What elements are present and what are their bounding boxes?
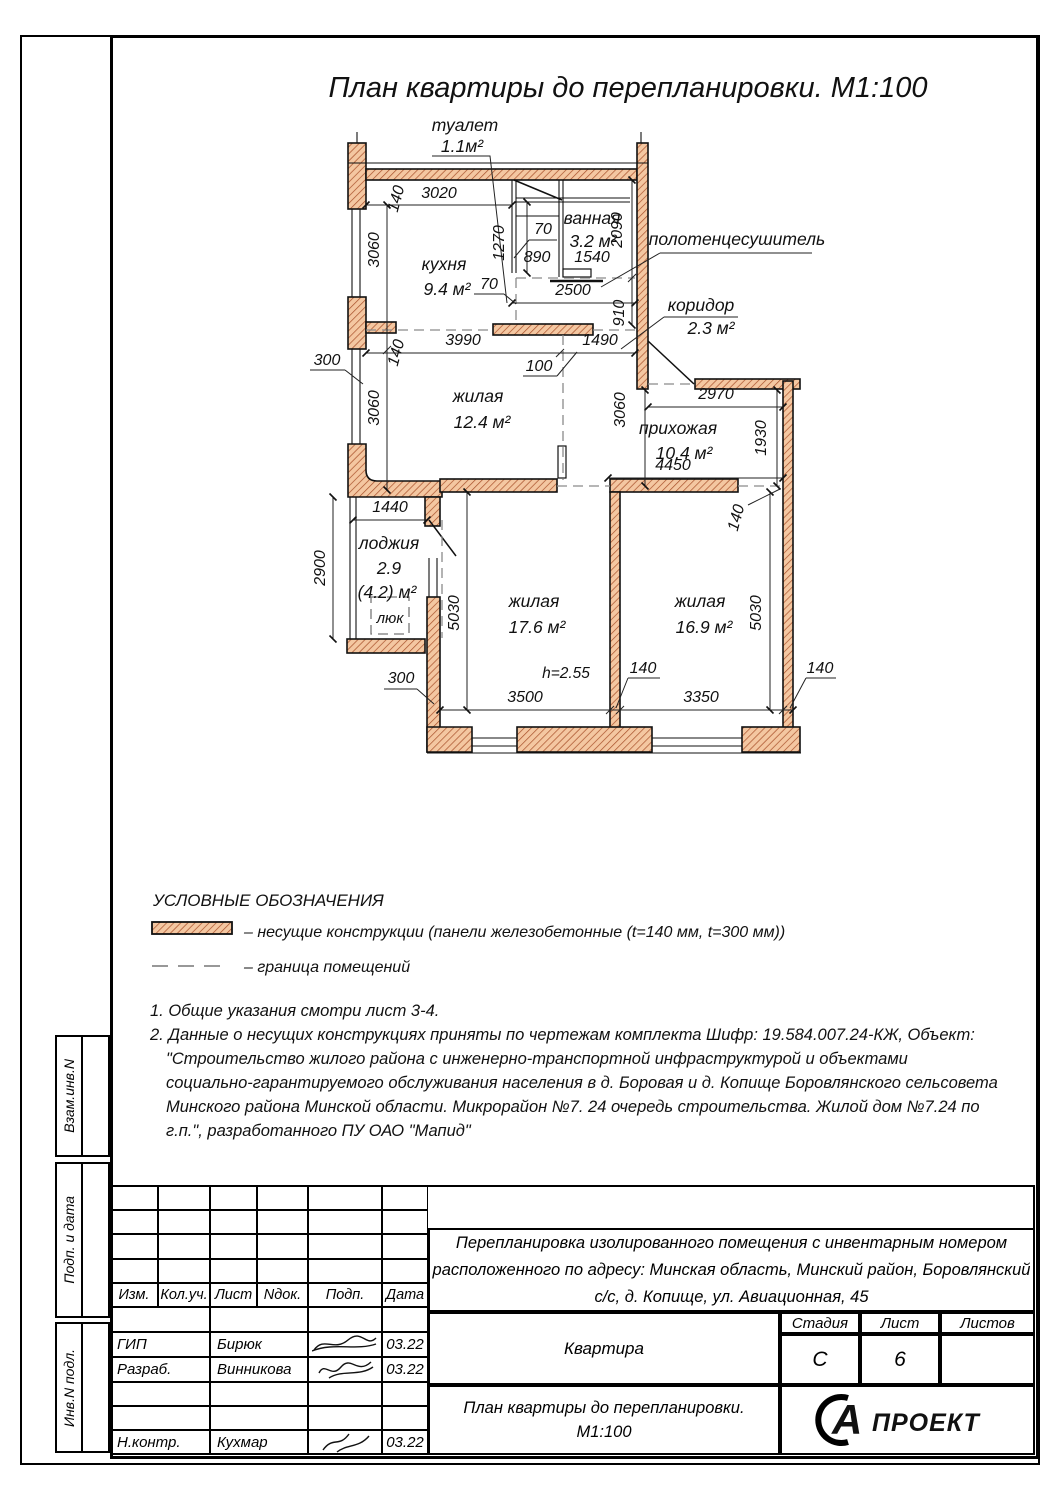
side-box-podp: Подп. и дата xyxy=(55,1162,110,1318)
towel-dryer-label: полотенцесушитель xyxy=(649,229,825,249)
document-title-cell: Перепланировка изолированного помещения … xyxy=(428,1228,1035,1312)
svg-text:социально-гарантируемого обслу: социально-гарантируемого обслуживания на… xyxy=(166,1074,998,1092)
svg-text:300: 300 xyxy=(314,352,341,369)
svg-text:3060: 3060 xyxy=(366,232,383,268)
room-hall-name: прихожая xyxy=(639,418,717,438)
svg-text:1440: 1440 xyxy=(372,499,408,516)
legend-bearing-swatch xyxy=(152,922,232,934)
svg-text:1. Общие указания смотри лист: 1. Общие указания смотри лист 3-4. xyxy=(150,1002,439,1020)
stage-value: С xyxy=(780,1334,860,1385)
logo-cell: А ПРОЕКТ xyxy=(780,1385,1035,1455)
room-loggia-area1: 2.9 xyxy=(376,558,402,578)
legend-boundary-label: – граница помещений xyxy=(243,959,410,976)
room-living2-name: жилая xyxy=(508,591,560,611)
ceiling-height-note: h=2.55 xyxy=(542,665,590,682)
row-razrab-date: 03.22 xyxy=(382,1357,428,1382)
svg-text:3500: 3500 xyxy=(507,689,543,706)
svg-text:г.п.", разработанного ПУ ОАО ": г.п.", разработанного ПУ ОАО "Мапид" xyxy=(166,1122,472,1140)
row-razrab-name: Винникова xyxy=(210,1357,308,1382)
room-kitchen-name: кухня xyxy=(422,254,467,274)
row-nkontr-role: Н.контр. xyxy=(110,1430,210,1455)
row-nkontr-date: 03.22 xyxy=(382,1430,428,1455)
floor-plan: План квартиры до перепланировки. М1:100 xyxy=(0,0,1060,1180)
room-corridor-area: 2.3 м² xyxy=(686,318,735,338)
door-jamb xyxy=(558,446,566,478)
hatch-label: люк xyxy=(376,610,405,627)
svg-text:70: 70 xyxy=(534,221,552,238)
room-living2-area: 17.6 м² xyxy=(509,617,567,637)
side-box-vzam: Взам.инв.N xyxy=(55,1035,110,1157)
room-bath-area: 3.2 м² xyxy=(569,231,617,251)
document-title-line: расположенного по адресу: Минская област… xyxy=(433,1257,1031,1284)
document-title-line: с/с, д. Копище, ул. Авиационная, 45 xyxy=(594,1284,868,1311)
general-notes: 1. Общие указания смотри лист 3-4. 2. Да… xyxy=(149,1002,998,1140)
col-izm: Изм. xyxy=(110,1283,158,1307)
row-razrab-role: Разраб. xyxy=(110,1357,210,1382)
col-podp: Подп. xyxy=(308,1283,382,1307)
row-gip-date: 03.22 xyxy=(382,1332,428,1357)
row-gip-role: ГИП xyxy=(110,1332,210,1357)
drawing-sheet: План квартиры до перепланировки. М1:100 xyxy=(0,0,1060,1500)
room-hall-area: 10.4 м² xyxy=(656,443,714,463)
svg-text:5030: 5030 xyxy=(748,595,765,631)
room-living1-name: жилая xyxy=(452,386,504,406)
col-data: Дата xyxy=(382,1283,428,1307)
svg-text:2970: 2970 xyxy=(697,386,734,403)
sheet-title-cell: План квартиры до перепланировки. М1:100 xyxy=(428,1385,780,1455)
svg-text:100: 100 xyxy=(526,358,553,375)
svg-text:140: 140 xyxy=(725,503,748,533)
room-toilet-area: 1.1м² xyxy=(441,136,484,156)
svg-text:1930: 1930 xyxy=(753,420,770,456)
signature-icon xyxy=(312,1334,378,1356)
room-toilet-name: туалет xyxy=(432,115,498,135)
svg-text:2. Данные о несущих конструкци: 2. Данные о несущих конструкциях приняты… xyxy=(149,1026,975,1044)
side-label-vzam: Взам.инв.N xyxy=(61,1059,77,1133)
legend-bearing-label: – несущие конструкции (панели железобето… xyxy=(243,924,785,941)
svg-text:890: 890 xyxy=(524,249,551,266)
logo-letter: А xyxy=(831,1396,862,1443)
sheet-title-line: План квартиры до перепланировки. xyxy=(463,1396,744,1420)
sheets-total xyxy=(940,1334,1035,1385)
towel-dryer-symbol xyxy=(550,269,603,478)
room-corridor-name: коридор xyxy=(668,295,735,315)
room-living1-area: 12.4 м² xyxy=(454,412,512,432)
object-name-cell: Квартира xyxy=(428,1312,780,1385)
signature-rows: ГИП Бирюк 03.22 Разраб. Винникова 03.22 … xyxy=(110,1307,428,1455)
room-living3-area: 16.9 м² xyxy=(676,617,734,637)
svg-text:Минского района Минской област: Минского района Минской области. Микрора… xyxy=(166,1098,980,1116)
document-title-line: Перепланировка изолированного помещения … xyxy=(456,1230,1007,1257)
svg-text:140: 140 xyxy=(807,660,834,677)
stage-label-cell: Стадия xyxy=(780,1312,860,1334)
logo-word: ПРОЕКТ xyxy=(872,1409,981,1437)
side-label-inv: Инв.N подл. xyxy=(61,1349,77,1427)
legend: УСЛОВНЫЕ ОБОЗНАЧЕНИЯ – несущие конструкц… xyxy=(152,891,785,976)
svg-text:"Строительство жилого района с: "Строительство жилого района с инженерно… xyxy=(166,1050,908,1068)
dimension-labels: 3020 2500 3990 1490 2970 4450 1440 3500 … xyxy=(312,184,833,706)
side-box-inv: Инв.N подл. xyxy=(55,1322,110,1453)
sheets-label-cell: Листов xyxy=(940,1312,1035,1334)
svg-text:3060: 3060 xyxy=(612,392,629,428)
row-nkontr-signature xyxy=(308,1430,382,1455)
svg-text:1540: 1540 xyxy=(574,249,610,266)
aproekt-logo-icon: А ПРОЕКТ xyxy=(808,1393,1008,1447)
svg-text:140: 140 xyxy=(385,184,408,214)
signature-icon xyxy=(317,1432,373,1454)
room-bath-name: ванная xyxy=(564,208,621,228)
sheet-label-cell: Лист xyxy=(860,1312,940,1334)
svg-text:3060: 3060 xyxy=(366,390,383,426)
revision-header-row: Изм. Кол.уч. Лист Nдок. Подп. Дата xyxy=(110,1283,428,1307)
svg-text:140: 140 xyxy=(630,660,657,677)
svg-text:140: 140 xyxy=(385,338,408,368)
col-ndok: Nдок. xyxy=(257,1283,308,1307)
signature-icon xyxy=(315,1359,375,1381)
page-title: План квартиры до перепланировки. М1:100 xyxy=(329,72,928,104)
sheet-title-line: М1:100 xyxy=(576,1420,631,1444)
svg-text:3990: 3990 xyxy=(445,332,481,349)
svg-text:70: 70 xyxy=(480,276,498,293)
legend-heading: УСЛОВНЫЕ ОБОЗНАЧЕНИЯ xyxy=(152,891,384,910)
row-nkontr-name: Кухмар xyxy=(210,1430,308,1455)
svg-text:300: 300 xyxy=(388,670,415,687)
svg-text:2500: 2500 xyxy=(554,282,591,299)
revision-grid xyxy=(110,1185,428,1283)
svg-text:910: 910 xyxy=(611,300,628,327)
col-list: Лист xyxy=(210,1283,257,1307)
sheet-number: 6 xyxy=(860,1334,940,1385)
row-razrab-signature xyxy=(308,1357,382,1382)
svg-text:2900: 2900 xyxy=(312,550,329,587)
svg-text:1270: 1270 xyxy=(491,225,508,261)
svg-text:1490: 1490 xyxy=(582,332,618,349)
row-gip-name: Бирюк xyxy=(210,1332,308,1357)
svg-text:3350: 3350 xyxy=(683,689,719,706)
room-living3-name: жилая xyxy=(674,591,726,611)
row-gip-signature xyxy=(308,1332,382,1357)
room-loggia-area2: (4.2) м² xyxy=(358,582,418,602)
room-kitchen-area: 9.4 м² xyxy=(423,279,471,299)
side-label-podp: Подп. и дата xyxy=(61,1196,77,1284)
svg-text:3020: 3020 xyxy=(421,185,457,202)
room-loggia-name: лоджия xyxy=(358,533,419,553)
svg-text:5030: 5030 xyxy=(446,595,463,631)
col-koluch: Кол.уч. xyxy=(158,1283,210,1307)
